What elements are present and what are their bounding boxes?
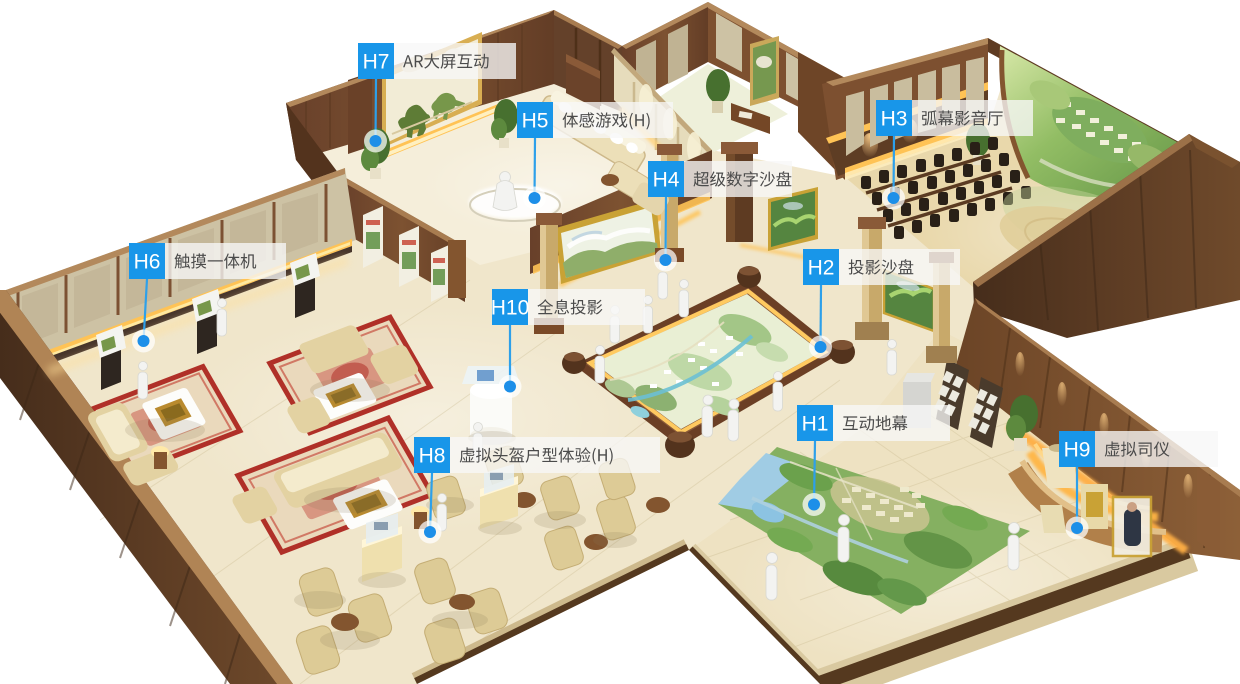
svg-text:H4: H4	[653, 169, 680, 192]
svg-text:H1: H1	[802, 413, 829, 436]
svg-text:H9: H9	[1064, 439, 1091, 462]
svg-text:H3: H3	[881, 108, 908, 131]
svg-text:H8: H8	[419, 445, 446, 468]
svg-text:H2: H2	[808, 257, 835, 280]
svg-text:H6: H6	[134, 251, 161, 274]
svg-text:H10: H10	[491, 297, 530, 320]
svg-text:H5: H5	[522, 110, 549, 133]
svg-text:H7: H7	[363, 51, 390, 74]
